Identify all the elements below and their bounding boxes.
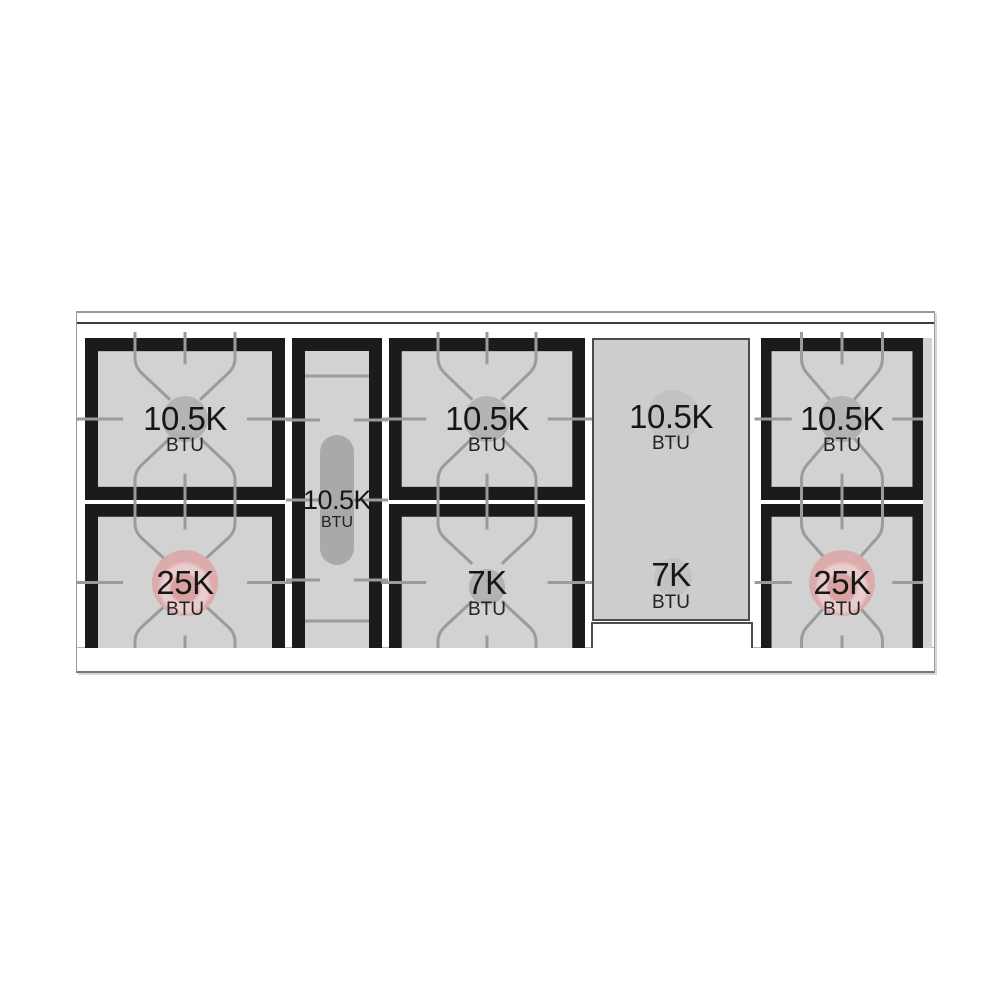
burner-unit-label: BTU <box>761 599 923 621</box>
burner-unit-label: BTU <box>594 433 748 455</box>
right-edge-trim <box>923 338 932 661</box>
burner-left-bottom: 25K BTU <box>85 504 285 661</box>
rangetop-diagram: 10.5K BTU 25K BTU <box>0 0 1000 1000</box>
burner-rating: 25K <box>761 566 923 600</box>
burner-rating: 10.5K <box>292 485 382 515</box>
burner-rating: 25K <box>85 566 285 600</box>
burner-rating: 10.5K <box>389 402 585 436</box>
burner-unit-label: BTU <box>389 435 585 457</box>
back-trim <box>77 311 934 324</box>
griddle-panel: 10.5K BTU 7K BTU <box>592 338 750 621</box>
burner-right-top: 10.5K BTU <box>761 338 923 500</box>
burner-unit-label: BTU <box>85 599 285 621</box>
burner-center-oval: 10.5K BTU <box>292 338 382 661</box>
burner-rating: 10.5K <box>594 400 748 434</box>
burner-unit-label: BTU <box>85 435 285 457</box>
burner-rating: 7K <box>594 558 748 592</box>
burner-middle-top: 10.5K BTU <box>389 338 585 500</box>
burner-unit-label: BTU <box>594 592 748 614</box>
cooktop-surface: 10.5K BTU 25K BTU <box>76 311 935 673</box>
burner-unit-label: BTU <box>389 599 585 621</box>
burner-middle-bottom: 7K BTU <box>389 504 585 661</box>
burner-left-top: 10.5K BTU <box>85 338 285 500</box>
burner-area: 10.5K BTU 25K BTU <box>77 324 934 648</box>
burner-unit-label: BTU <box>292 514 382 532</box>
front-trim <box>77 648 934 671</box>
burner-rating: 10.5K <box>85 402 285 436</box>
burner-unit-label: BTU <box>761 435 923 457</box>
burner-right-bottom: 25K BTU <box>761 504 923 661</box>
burner-rating: 10.5K <box>761 402 923 436</box>
burner-rating: 7K <box>389 566 585 600</box>
